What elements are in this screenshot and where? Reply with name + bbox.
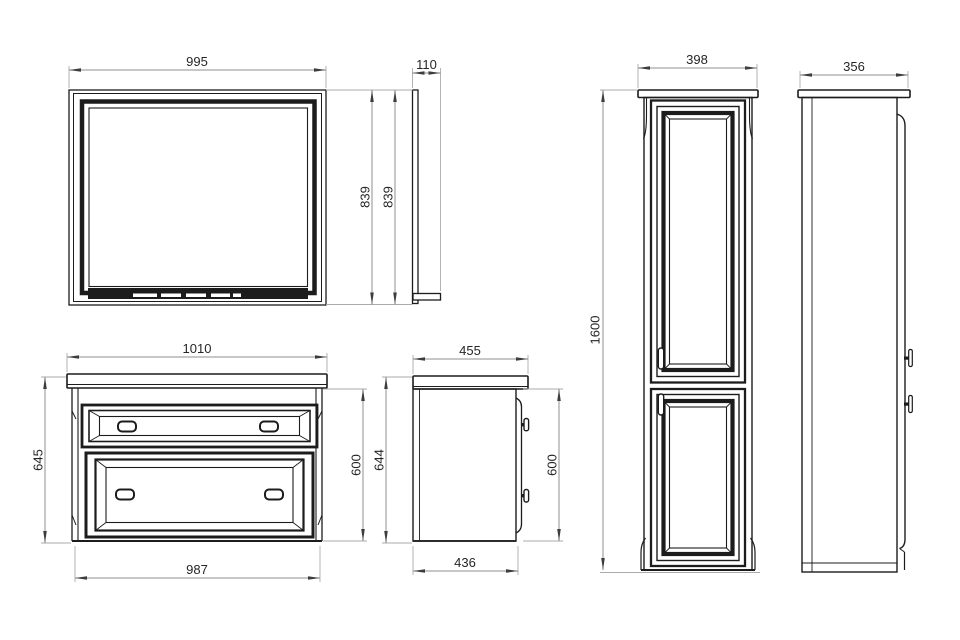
- mirror-shelf-slot: [233, 294, 241, 298]
- dim-label-mirror-height-side: 839: [381, 186, 396, 208]
- mirror-frame: [82, 102, 315, 294]
- mirror-outer-edge: [69, 90, 326, 305]
- handle-bar: [909, 396, 913, 413]
- dim-label-vanity-height-side: 644: [372, 449, 387, 471]
- cabinet-side-door-profile: [897, 114, 906, 549]
- dim-cabinet-width: 398: [638, 52, 757, 88]
- mirror-side-panel: [413, 90, 419, 304]
- door-panel: [670, 119, 727, 364]
- dim-label-cabinet-height: 1600: [588, 316, 603, 345]
- dim-label-mirror-height-front: 839: [358, 186, 373, 208]
- cabinet-side-foot-line: [900, 549, 905, 553]
- mirror-front-view: [69, 90, 326, 305]
- technical-drawing-canvas: 995 839 839 110: [0, 0, 960, 640]
- vanity-side-countertop: [413, 376, 528, 389]
- bevel-corner: [293, 460, 304, 468]
- bevel-corner: [300, 436, 311, 442]
- tall-cabinet-side-view: [798, 90, 912, 572]
- mirror-shelf-slot: [133, 294, 157, 298]
- bevel-corner: [89, 436, 100, 442]
- door-panel: [670, 407, 727, 548]
- dim-vanity-top-width: 1010: [67, 341, 327, 372]
- dim-vanity-body-width: 987: [75, 546, 320, 582]
- dim-label-cabinet-depth: 356: [843, 59, 865, 74]
- cabinet-side-body: [802, 98, 897, 573]
- dim-label-vanity-height: 645: [31, 449, 46, 471]
- vanity-side-handle: [522, 490, 529, 503]
- drawer-handle: [260, 422, 278, 432]
- dim-cabinet-depth: 356: [800, 59, 908, 88]
- dim-label-vanity-body-width: 987: [186, 562, 208, 577]
- drawer-handle: [116, 490, 134, 500]
- door-handle: [658, 394, 663, 415]
- mirror-outer-edge-inner-line: [74, 94, 322, 302]
- bevel-corner: [89, 411, 100, 417]
- dim-mirror-height-side: 839: [381, 90, 396, 305]
- bevel-corner: [300, 411, 311, 417]
- cabinet-side-cornice: [798, 90, 910, 98]
- mirror-shelf-slot: [186, 294, 206, 298]
- handle-stem: [904, 403, 909, 406]
- vanity-bottom-drawer: [86, 453, 313, 537]
- vanity-front-view: [67, 374, 327, 541]
- vanity-side-door-profile: [516, 398, 522, 533]
- tall-cabinet-front-view: [638, 90, 758, 570]
- dim-mirror-height-front: 839: [326, 90, 413, 305]
- dim-vanity-body-height-front: 600: [323, 389, 367, 541]
- dim-vanity-body-depth: 436: [413, 546, 518, 575]
- vanity-countertop: [67, 374, 327, 388]
- cabinet-cornice: [638, 90, 758, 98]
- mirror-shelf-slot: [161, 294, 181, 298]
- dim-label-vanity-body-height-front: 600: [349, 454, 364, 476]
- mirror-side-view: [413, 90, 441, 304]
- cabinet-top-door: [651, 101, 745, 383]
- cabinet-leg: [641, 538, 646, 570]
- bevel-corner: [96, 523, 107, 531]
- vanity-side-handle: [522, 419, 529, 431]
- dim-label-cabinet-width: 398: [686, 52, 708, 67]
- door-handle: [658, 348, 663, 369]
- dim-vanity-top-depth: 455: [413, 343, 528, 374]
- dim-label-vanity-top-depth: 455: [459, 343, 481, 358]
- mirror-shelf-slot: [211, 294, 230, 298]
- dim-mirror-width: 995: [69, 54, 326, 88]
- handle-bar: [909, 350, 913, 367]
- dim-label-vanity-body-depth: 436: [454, 555, 476, 570]
- mirror-side-shelf: [413, 294, 441, 301]
- mirror-glass-edge: [89, 108, 308, 287]
- drawer-handle: [118, 422, 136, 432]
- vanity-top-drawer: [82, 405, 317, 447]
- cabinet-bottom-door: [651, 389, 745, 566]
- dim-label-vanity-top-width: 1010: [183, 341, 212, 356]
- dim-label-vanity-body-height-side: 600: [545, 454, 560, 476]
- cabinet-leg: [751, 538, 756, 570]
- vanity-side-body: [413, 389, 516, 541]
- dim-vanity-height-side: 644: [372, 377, 413, 543]
- dim-label-mirror-depth: 110: [416, 57, 437, 72]
- dim-vanity-height: 645: [31, 377, 72, 543]
- handle-stem: [904, 357, 909, 360]
- handle-bar: [524, 419, 529, 431]
- handle-bar: [524, 490, 529, 503]
- dim-vanity-body-height-side: 600: [523, 389, 563, 541]
- dim-label-mirror-width: 995: [186, 54, 208, 69]
- door-panel-moulding: [664, 401, 733, 554]
- bevel-corner: [293, 523, 304, 531]
- cabinet-body: [644, 98, 752, 571]
- door-panel-moulding: [664, 113, 733, 370]
- bevel-corner: [96, 460, 107, 468]
- drawer-handle: [265, 490, 283, 500]
- vanity-side-view: [413, 376, 529, 541]
